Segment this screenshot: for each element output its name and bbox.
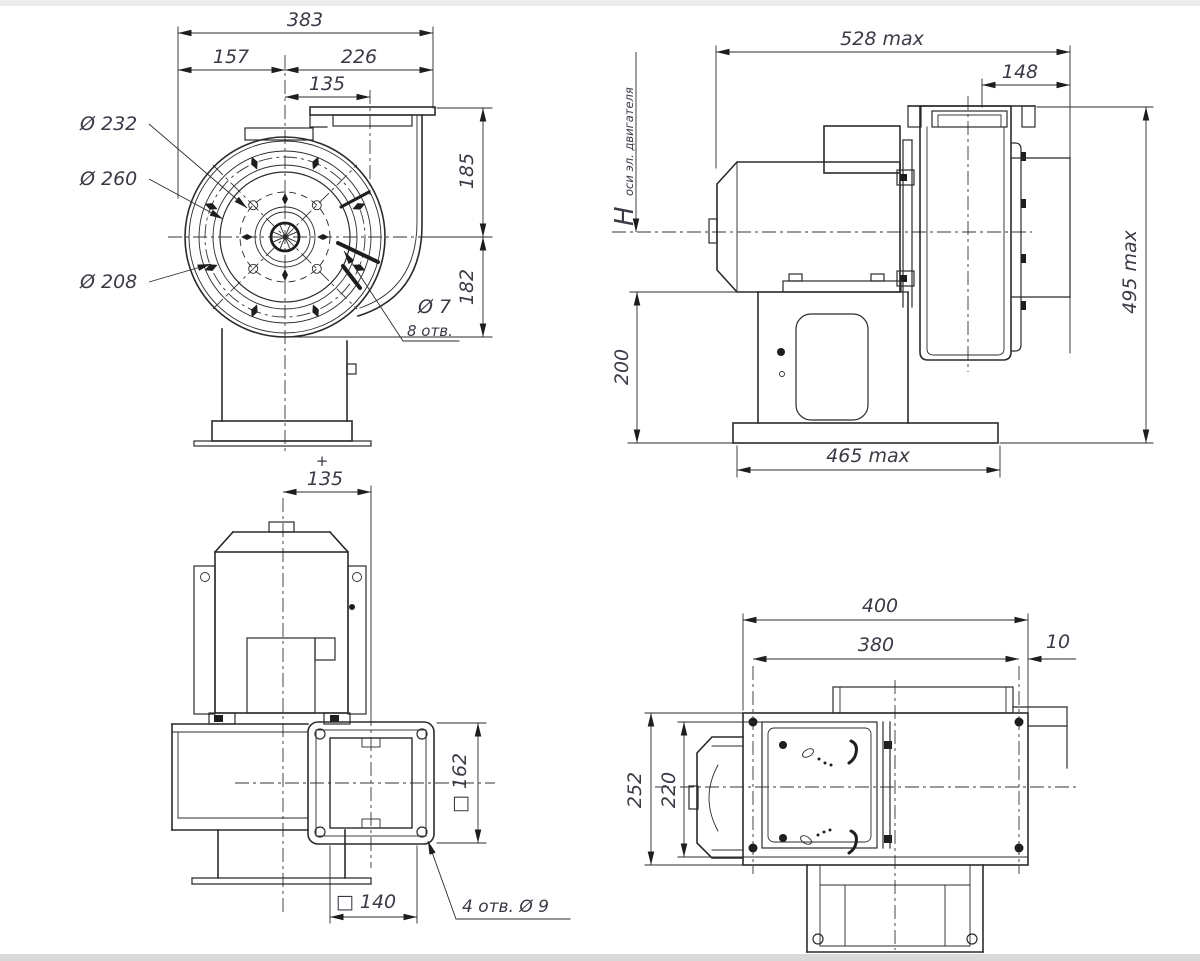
- dim-400: 400: [862, 595, 898, 617]
- dim-10: 10: [1046, 631, 1070, 653]
- front-view: 383 157 226 135 185 182 Ø 232 Ø 260 Ø 20…: [79, 9, 492, 470]
- top-centerlines: [235, 498, 495, 912]
- technical-drawing: 383 157 226 135 185 182 Ø 232 Ø 260 Ø 20…: [0, 0, 1200, 961]
- bottom-base-plate: [743, 713, 1028, 865]
- side-dimensions: 528 max 148 H оси эл. двигателя 200 465 …: [610, 28, 1153, 477]
- side-pedestal: [733, 292, 998, 443]
- dim-157: 157: [213, 46, 249, 68]
- front-pedestal: [194, 329, 371, 446]
- side-view: 528 max 148 H оси эл. двигателя 200 465 …: [610, 28, 1153, 477]
- dim-220: 220: [658, 772, 680, 808]
- drawing-sheet: 383 157 226 135 185 182 Ø 232 Ø 260 Ø 20…: [0, 0, 1200, 961]
- dim-380: 380: [858, 634, 894, 656]
- side-fan-casing: [908, 106, 1070, 360]
- dim-162: □ 162: [449, 753, 471, 813]
- dim-140: □ 140: [336, 891, 396, 913]
- dim-226: 226: [341, 46, 377, 68]
- dim-200: 200: [611, 349, 633, 385]
- dim-185: 185: [456, 153, 478, 189]
- dim-252: 252: [624, 772, 646, 808]
- label-4-holes: 4 отв. Ø 9: [462, 897, 549, 917]
- side-centerlines: [612, 96, 1032, 372]
- dim-465-max: 465 max: [826, 445, 910, 467]
- bottom-centerlines: [655, 666, 1078, 950]
- top-dimensions: 135 □ 162 □ 140 4 отв. Ø 9: [283, 468, 570, 923]
- h-label: H: [610, 206, 640, 226]
- top-motor: [194, 522, 366, 724]
- bottom-dimensions: 400 380 10 252 220: [624, 595, 1076, 865]
- hook-mark: [849, 741, 856, 763]
- dim-528-max: 528 max: [840, 28, 924, 50]
- dim-495-max: 495 max: [1119, 229, 1141, 313]
- top-pedestal: [192, 830, 371, 884]
- motor-axis-height-label: H оси эл. двигателя: [610, 87, 640, 226]
- label-8-holes: 8 отв.: [407, 322, 453, 340]
- side-motor: [709, 126, 914, 307]
- h-sub-label: оси эл. двигателя: [622, 87, 636, 196]
- label-d208: Ø 208: [79, 271, 137, 293]
- dim-383: 383: [287, 9, 323, 31]
- label-d260: Ø 260: [79, 168, 137, 190]
- bottom-motor-nose: [689, 737, 743, 858]
- dim-182: 182: [456, 269, 478, 305]
- dim-148: 148: [1002, 61, 1038, 83]
- bottom-casing-collar: [833, 687, 1067, 768]
- label-d232: Ø 232: [79, 113, 137, 135]
- label-d7: Ø 7: [417, 296, 451, 318]
- top-casing-band: [172, 724, 308, 830]
- bottom-view: 400 380 10 252 220: [624, 595, 1078, 952]
- dim-135-top: 135: [307, 468, 343, 490]
- front-dimensions: 383 157 226 135 185 182 Ø 232 Ø 260 Ø 20…: [79, 9, 492, 470]
- scan-artifact-top: [0, 0, 1200, 6]
- dim-135-front: 135: [309, 73, 345, 95]
- scan-artifact-bottom: [0, 954, 1200, 961]
- top-view: 135 □ 162 □ 140 4 отв. Ø 9: [172, 468, 570, 923]
